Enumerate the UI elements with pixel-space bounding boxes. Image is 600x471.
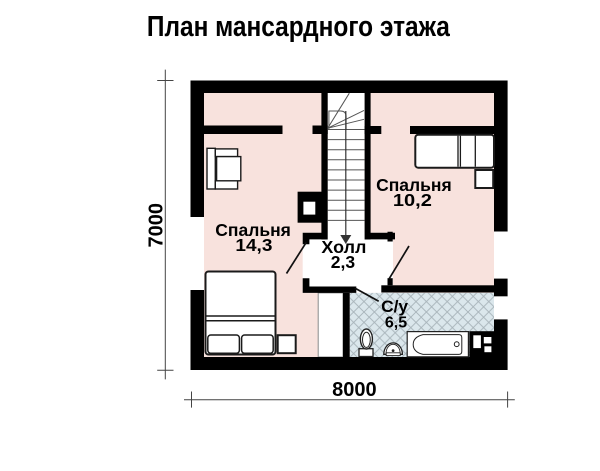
svg-text:7000: 7000 [146,203,168,248]
svg-text:14,3: 14,3 [235,235,272,255]
svg-text:2,3: 2,3 [331,252,356,272]
svg-text:8000: 8000 [332,379,377,401]
svg-text:6,5: 6,5 [385,315,407,332]
svg-text:План мансардного этажа: План мансардного этажа [147,11,451,43]
svg-text:10,2: 10,2 [393,190,432,210]
svg-text:С/у: С/у [381,298,409,316]
